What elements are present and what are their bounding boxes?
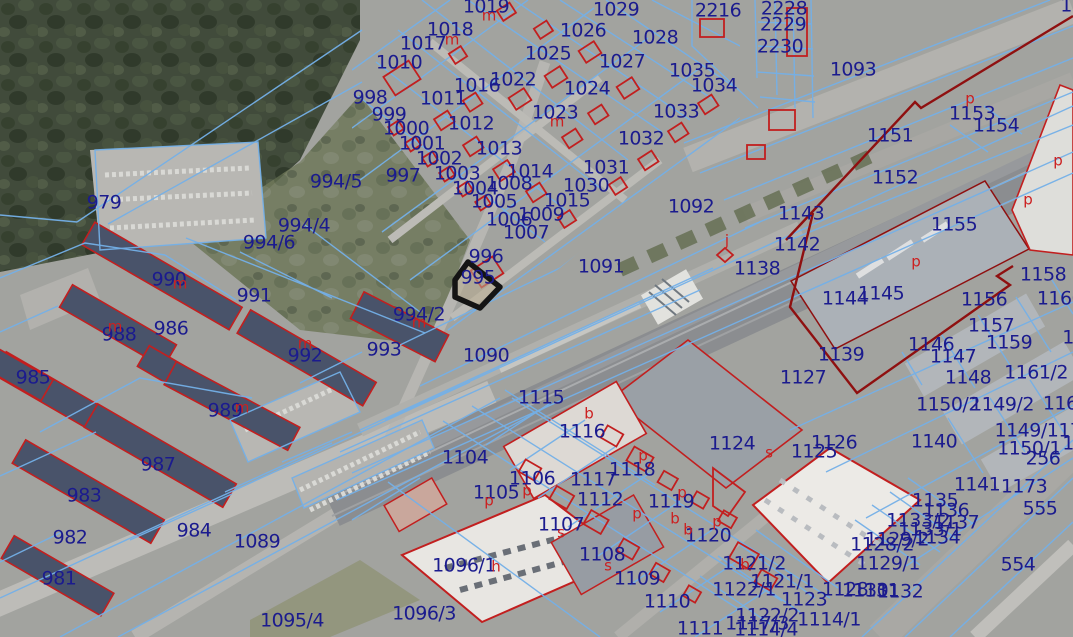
map-viewport[interactable]: 979994/5994/4994/69909919889869929859899… [0,0,1073,637]
aerial-map-canvas [0,0,1073,637]
